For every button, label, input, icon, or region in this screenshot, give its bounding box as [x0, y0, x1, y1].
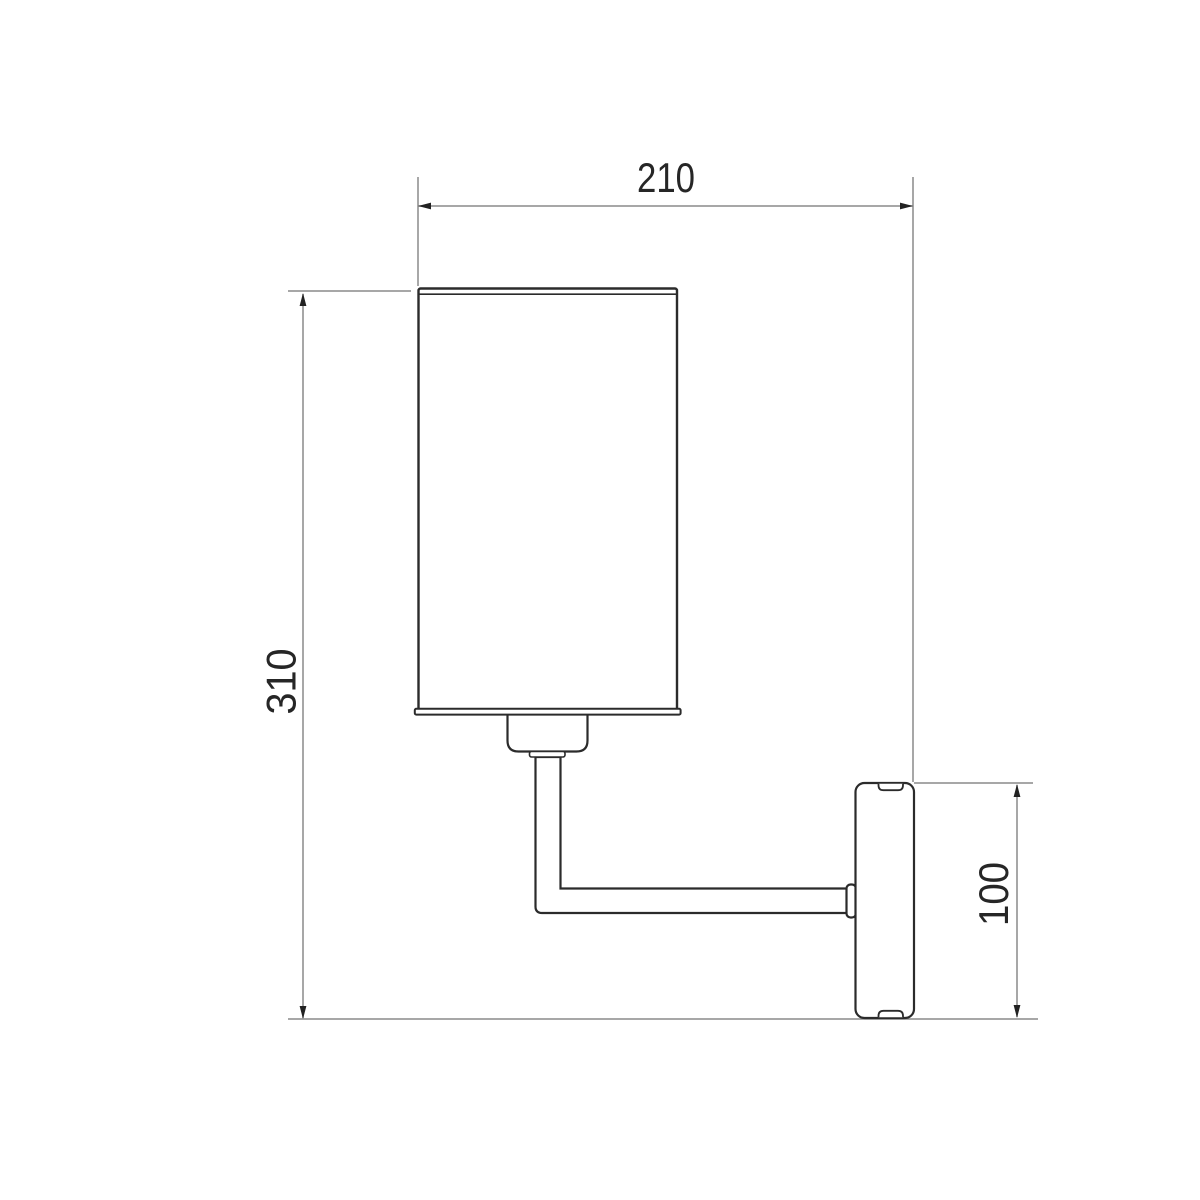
lamp-shade: [419, 289, 678, 715]
height-dimension-label: 310: [258, 649, 305, 715]
socket-holder: [508, 713, 588, 752]
backplate-top-screw-slot: [879, 784, 904, 790]
backplate-dimension-label: 100: [970, 862, 1017, 926]
socket-collar: [530, 752, 566, 758]
lamp-arm: [536, 757, 850, 913]
width-dim-arrowhead-left: [418, 203, 431, 210]
wall-lamp-outline: [415, 289, 914, 1019]
wall-lamp-dimension-drawing: 210 310 100: [0, 0, 1200, 1200]
height-dim-arrowhead-top: [300, 293, 307, 306]
width-dim-arrowhead-right: [900, 203, 913, 210]
wall-backplate: [856, 783, 915, 1018]
width-dimension-label: 210: [637, 154, 695, 201]
backplate-dim-arrowhead-top: [1014, 784, 1021, 797]
backplate-dim-arrowhead-bottom: [1014, 1005, 1021, 1018]
backplate-bottom-screw-slot: [879, 1011, 904, 1017]
shade-bottom-rim: [415, 709, 681, 715]
drawing-canvas: 210 310 100: [0, 0, 1200, 1200]
height-dim-arrowhead-bottom: [300, 1006, 307, 1019]
